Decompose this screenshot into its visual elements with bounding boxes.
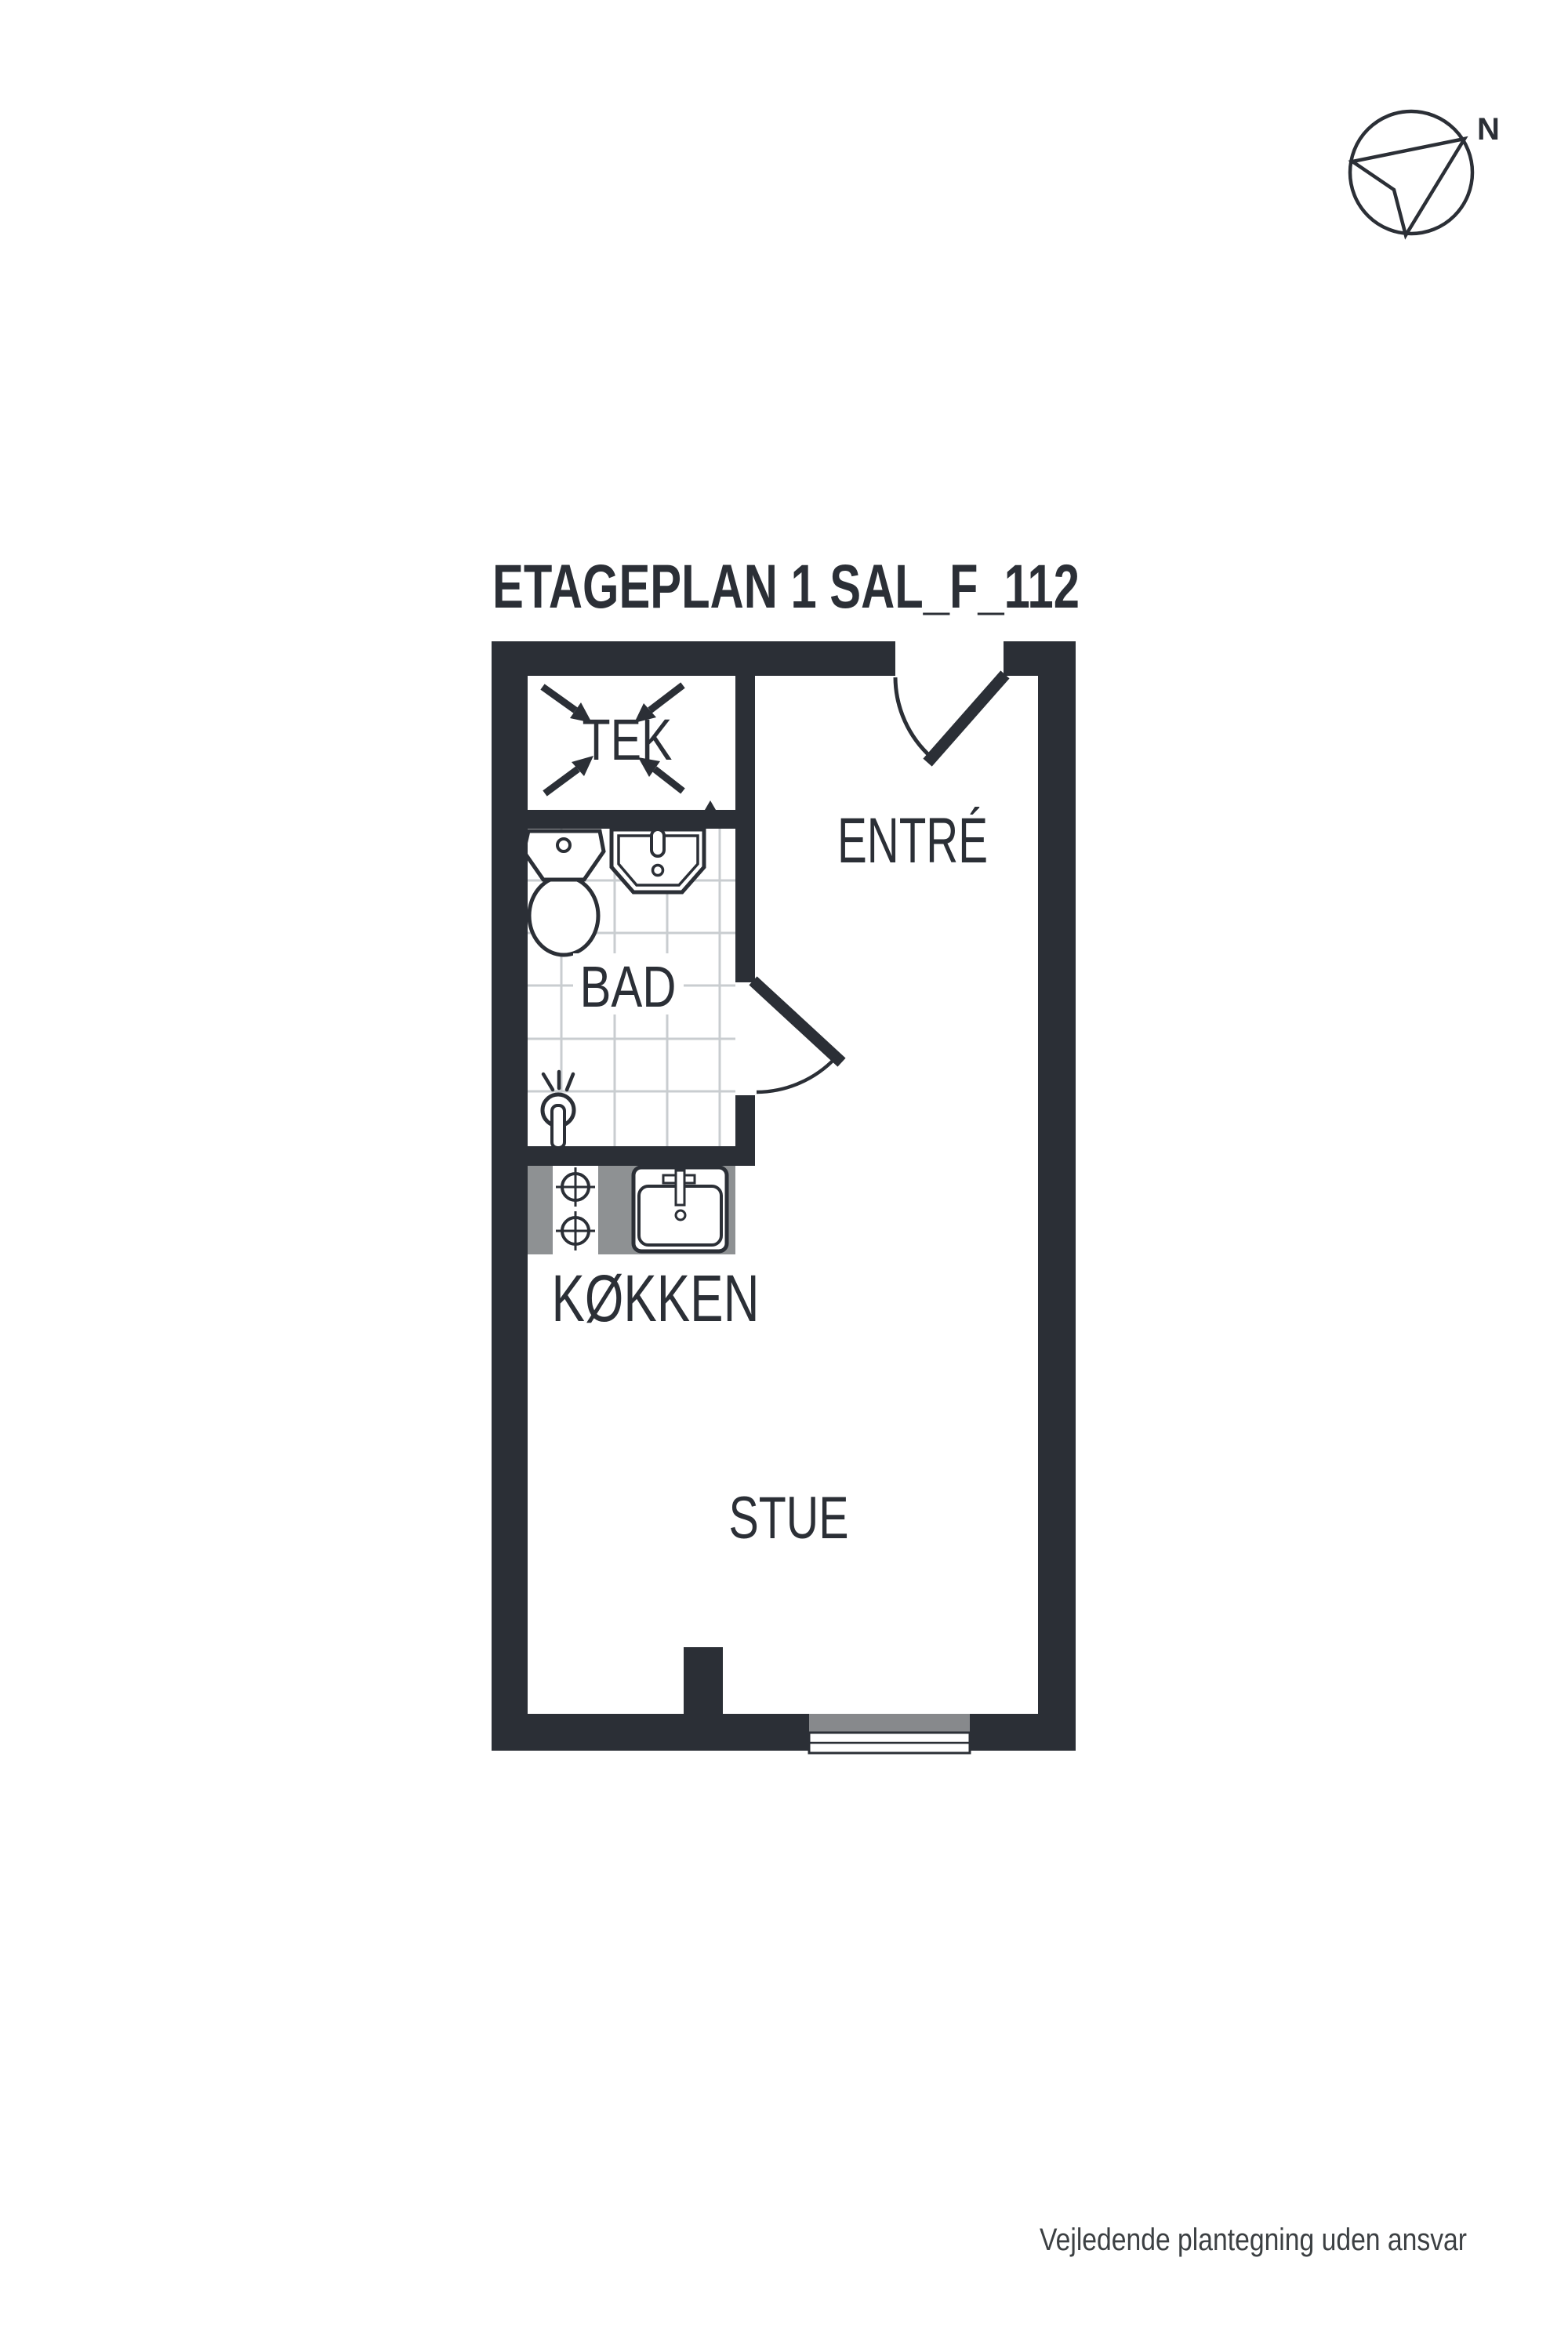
window-sill <box>809 1714 970 1733</box>
room-label-stue: STUE <box>729 1485 849 1552</box>
kitchen-sink-icon <box>633 1167 727 1251</box>
tek-wall-marker <box>705 800 716 810</box>
room-label-tek: TEK <box>583 707 673 772</box>
floor-plan: N ETAGEPLAN 1 SAL_F_112 <box>0 0 1568 2352</box>
floor-plan-page: N ETAGEPLAN 1 SAL_F_112 <box>0 0 1568 2352</box>
room-label-entre: ENTRÉ <box>837 805 988 877</box>
disclaimer: Vejledende plantegning uden ansvar <box>1040 2223 1467 2257</box>
wall-stub <box>684 1647 723 1714</box>
entrance-door-icon <box>895 677 1001 758</box>
shower-icon <box>543 1072 574 1148</box>
wall-right <box>1038 641 1076 1751</box>
wall-left <box>492 641 528 1751</box>
wall-bottom-left <box>492 1714 809 1751</box>
wall-bottom-right <box>970 1714 1076 1751</box>
room-label-bad: BAD <box>580 954 677 1019</box>
wall-tek-bottom <box>502 810 755 829</box>
north-compass: N <box>1350 111 1500 235</box>
wall-bad-bottom <box>502 1146 755 1166</box>
toilet-icon <box>524 831 604 955</box>
window-icon <box>809 1714 970 1753</box>
north-label: N <box>1477 112 1500 147</box>
bathroom-sink-icon <box>612 829 704 892</box>
kitchen-counter <box>528 1166 735 1254</box>
wall-partition-upper <box>735 676 755 982</box>
wall-top-left <box>492 641 895 676</box>
room-label-kokken: KØKKEN <box>552 1261 760 1335</box>
plan-title: ETAGEPLAN 1 SAL_F_112 <box>492 551 1080 621</box>
bathroom-door-icon <box>757 985 837 1092</box>
